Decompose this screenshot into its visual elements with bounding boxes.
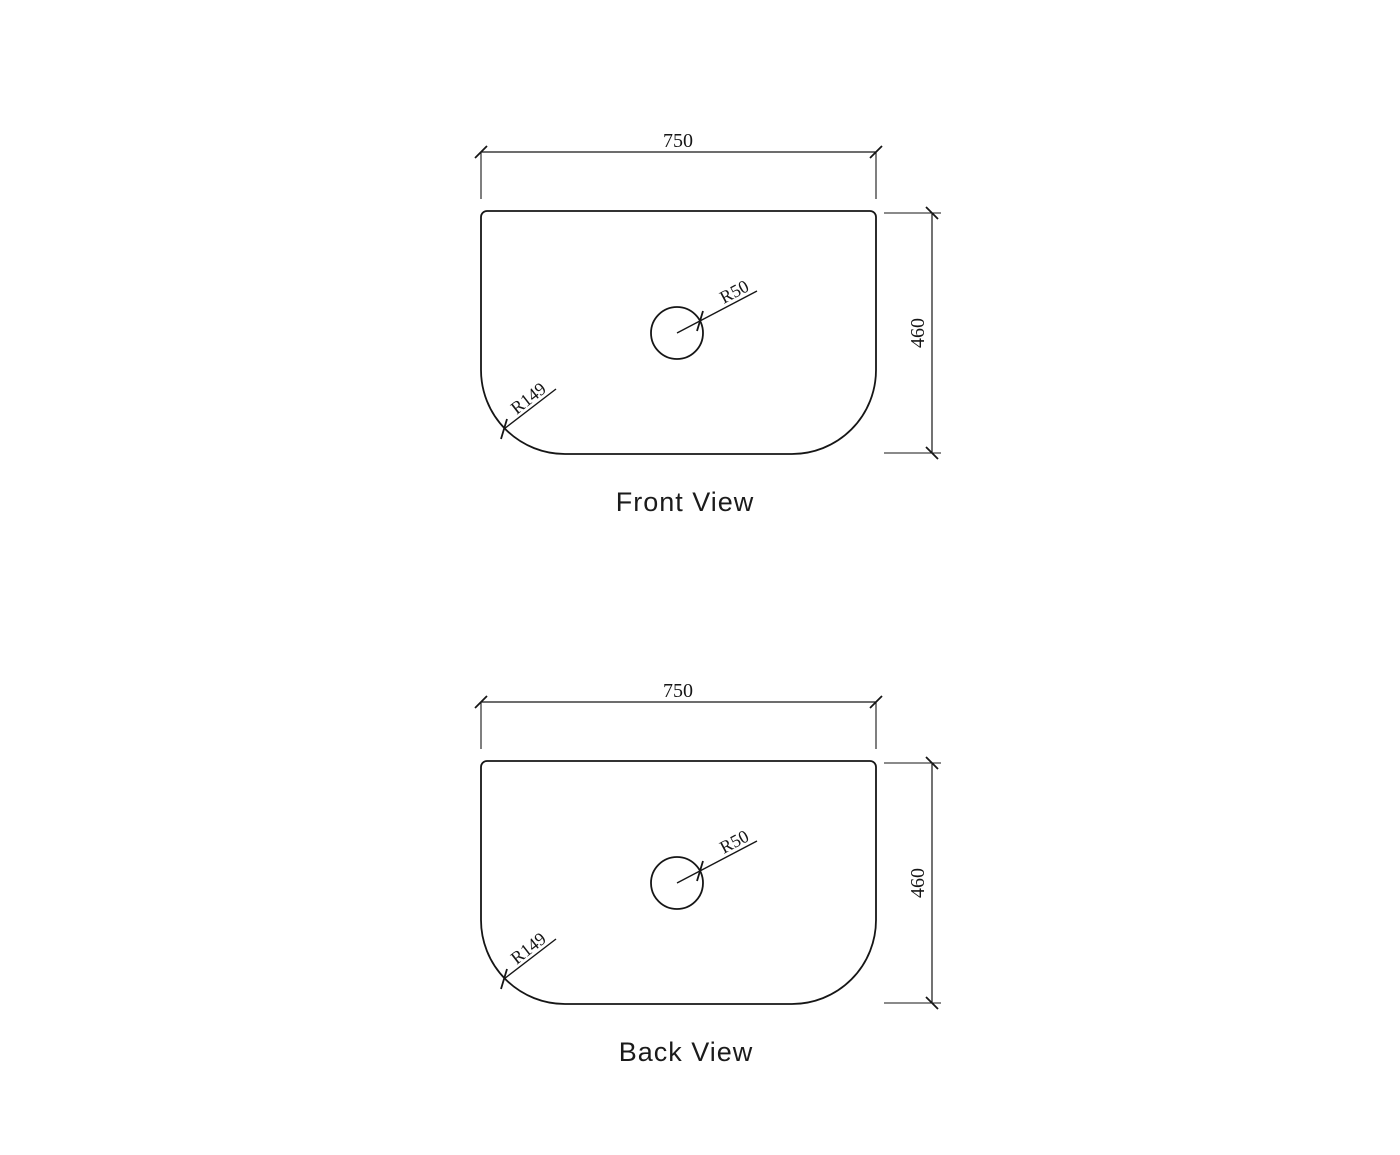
technical-drawing-svg: 750 460 R50 R149 (0, 0, 1400, 1155)
height-dimension-label: 460 (907, 868, 929, 898)
front-view: 750 460 R50 R149 (475, 130, 941, 517)
drawing-canvas: 750 460 R50 R149 (0, 0, 1400, 1155)
corner-radius-label: R149 (507, 928, 550, 968)
hole-radius-label: R50 (716, 276, 752, 308)
height-dimension: 460 (884, 757, 941, 1009)
height-dimension: 460 (884, 207, 941, 459)
corner-radius-label: R149 (507, 378, 550, 418)
corner-radius-callout: R149 (501, 928, 556, 989)
leader-line (677, 841, 757, 883)
width-dimension-label: 750 (663, 680, 693, 702)
hole-radius-callout: R50 (677, 276, 757, 333)
width-dimension: 750 (475, 680, 882, 749)
back-view: 750 460 R50 R149 (475, 680, 941, 1067)
width-dimension: 750 (475, 130, 882, 199)
back-view-title: Back View (619, 1037, 754, 1067)
leader-line (677, 291, 757, 333)
corner-radius-callout: R149 (501, 378, 556, 439)
hole-radius-label: R50 (716, 826, 752, 858)
width-dimension-label: 750 (663, 130, 693, 152)
hole-radius-callout: R50 (677, 826, 757, 883)
front-view-title: Front View (616, 487, 755, 517)
height-dimension-label: 460 (907, 318, 929, 348)
